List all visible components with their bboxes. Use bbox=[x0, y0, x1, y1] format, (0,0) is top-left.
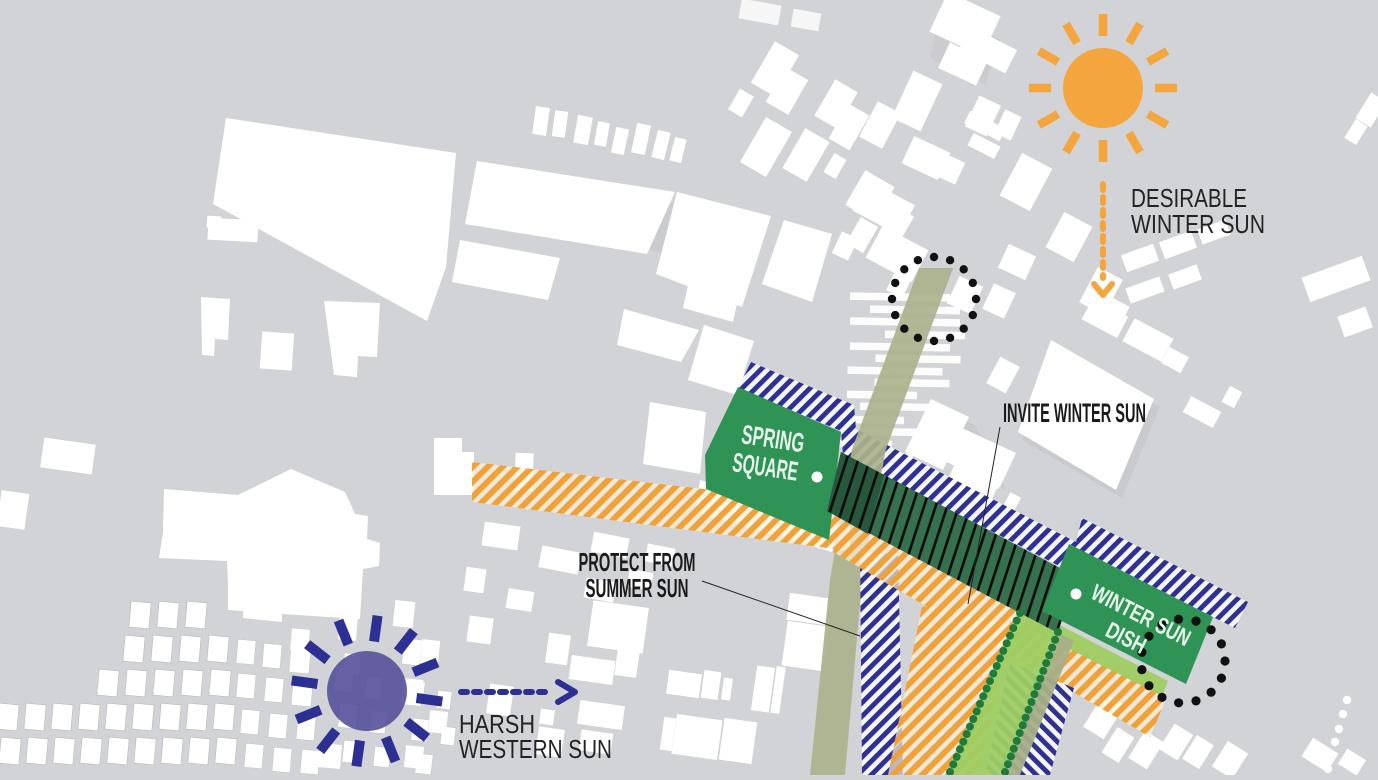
svg-text:INVITE WINTER SUN: INVITE WINTER SUN bbox=[1003, 398, 1146, 428]
svg-text:WINTER SUN: WINTER SUN bbox=[1131, 209, 1265, 239]
svg-text:WESTERN SUN: WESTERN SUN bbox=[459, 734, 612, 764]
svg-text:SUMMER SUN: SUMMER SUN bbox=[586, 573, 689, 603]
